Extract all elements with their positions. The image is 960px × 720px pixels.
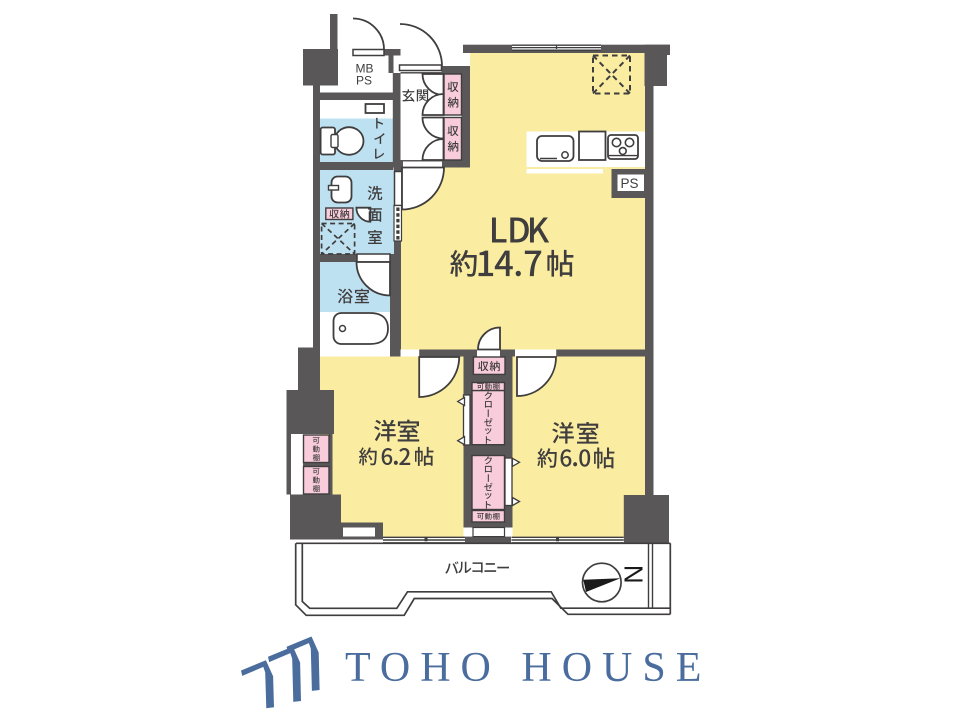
svg-text:PS: PS bbox=[356, 74, 372, 88]
svg-text:N: N bbox=[619, 565, 649, 584]
svg-text:PS: PS bbox=[620, 176, 638, 191]
svg-text:TOHO HOUSE: TOHO HOUSE bbox=[345, 645, 711, 691]
